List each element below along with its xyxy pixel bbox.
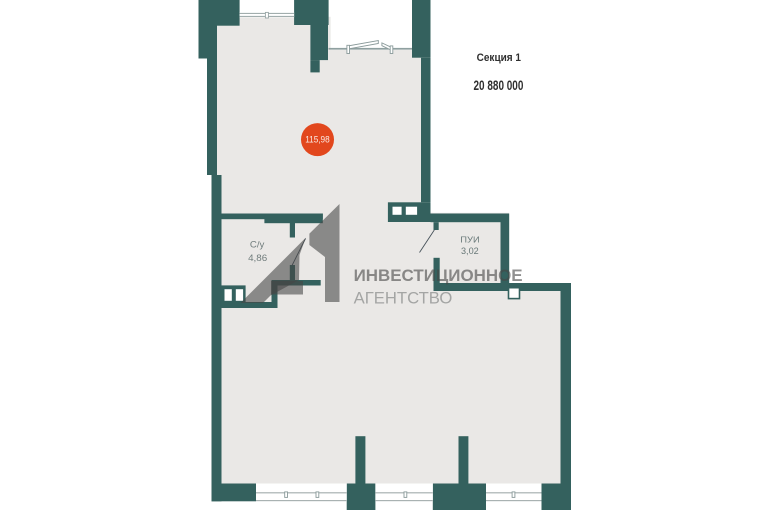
svg-text:Секция 1: Секция 1 bbox=[477, 52, 521, 64]
svg-text:ПУИ: ПУИ bbox=[460, 234, 479, 244]
svg-text:115,98: 115,98 bbox=[305, 135, 330, 145]
svg-text:ИНВЕСТИЦИОННОЕ: ИНВЕСТИЦИОННОЕ bbox=[354, 266, 523, 285]
svg-text:4,86: 4,86 bbox=[248, 253, 267, 263]
svg-text:С/у: С/у bbox=[250, 239, 265, 250]
svg-text:АГЕНТСТВО: АГЕНТСТВО bbox=[354, 288, 453, 307]
svg-text:20 880 000: 20 880 000 bbox=[474, 77, 524, 93]
svg-text:3,02: 3,02 bbox=[461, 246, 479, 256]
